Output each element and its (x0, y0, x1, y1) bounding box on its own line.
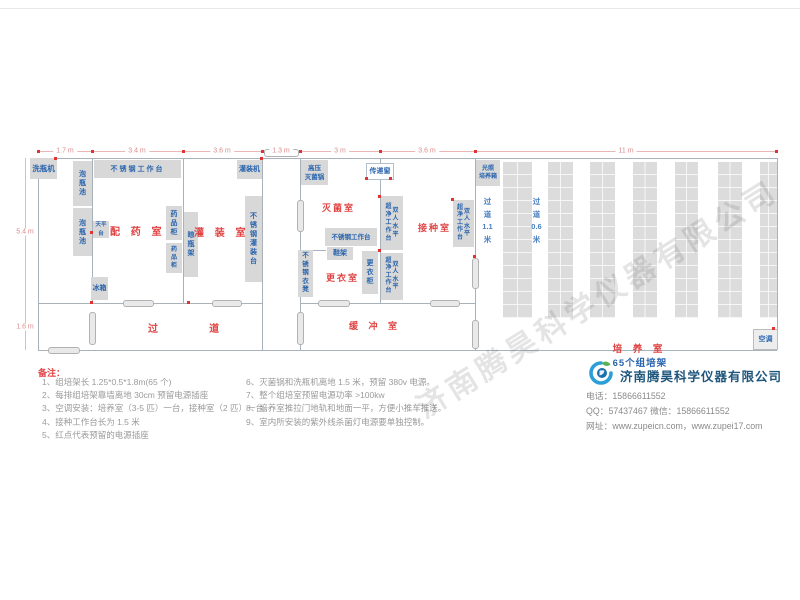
note-item: 5、红点代表预留的电源插座 (42, 429, 272, 442)
culture-rack-count: 65个组培架 (613, 358, 668, 369)
dim-label: 11 m (615, 148, 636, 155)
clean-bench-label-right: 双 人 水 平 (393, 262, 399, 292)
left-dimension-line (25, 158, 26, 350)
dim-label: 5.4 m (13, 229, 37, 236)
power-socket-dot (473, 255, 476, 258)
shoe-rack-box: 鞋架 (327, 247, 353, 260)
clean-bench-label-right: 双 人 水 平 (393, 207, 399, 239)
note-item: 7、整个组培室预留电源功率 >100kw (246, 389, 446, 402)
corridor-width-label-0.6m: 过 道 0.6 米 (529, 196, 544, 246)
power-socket-dot (451, 198, 454, 201)
room-label-changing: 更衣室 (326, 271, 359, 284)
company-qq-wechat: QQ：57437467 微信：15866611552 (586, 404, 730, 417)
power-socket-dot (474, 150, 477, 153)
power-socket-dot (91, 150, 94, 153)
door (89, 312, 96, 345)
locker-box: 更 衣 柜 (362, 251, 378, 294)
steel-worktable-box: 不锈钢工作台 (94, 160, 181, 178)
note-item: 8、培养室推拉门地轨和地面一平，方便小推车推送。 (246, 402, 446, 415)
power-socket-dot (378, 249, 381, 252)
autoclave-box: 高压 灭菌锅 (301, 160, 328, 185)
door (212, 300, 242, 307)
power-socket-dot (775, 150, 778, 153)
dim-label: 1.6 m (13, 324, 37, 331)
wall (38, 158, 777, 159)
note-item: 3、空调安装：培养室（3-5 匹）一台，接种室（2 匹）一台。 (42, 402, 272, 415)
door (123, 300, 154, 307)
door (472, 258, 479, 289)
steel-filling-table-box: 不 锈 钢 灌 装 台 (245, 196, 262, 282)
culture-rack (633, 162, 657, 318)
company-website: 网址：www.zupeicn.com，www.zupei17.com (586, 419, 762, 432)
room-label-inoculation: 接种室 (418, 221, 451, 234)
power-socket-dot (261, 150, 264, 153)
power-socket-dot (54, 157, 57, 160)
door (318, 300, 350, 307)
note-item: 4、接种工作台长为 1.5 米 (42, 416, 272, 429)
power-socket-dot (260, 157, 263, 160)
power-socket-dot (378, 195, 381, 198)
fridge-box: 冰箱 (91, 277, 108, 300)
clean-bench-box: 超 净 工 作 台 双 人 水 平 (453, 200, 474, 247)
steel-bench-box: 不 锈 钢 衣 凳 (298, 250, 313, 297)
note-item: 2、每排组培架靠墙离地 30cm 预留电源插座 (42, 389, 272, 402)
notes-column-1: 1、组培架长 1.25*0.5*1.8m(65 个) 2、每排组培架靠墙离地 3… (42, 376, 272, 442)
corridor-width-label-1.1m: 过 道 1.1 米 (480, 196, 495, 246)
culture-rack (590, 162, 615, 318)
power-socket-dot (90, 301, 93, 304)
door (48, 347, 80, 354)
wall (777, 158, 778, 350)
door (430, 300, 460, 307)
power-socket-dot (90, 231, 93, 234)
wall (38, 158, 39, 350)
culture-rack (548, 162, 573, 318)
note-item: 9、室内所安装的紫外线杀菌灯电源要单独控制。 (246, 416, 446, 429)
power-socket-dot (299, 150, 302, 153)
clean-bench-box: 超 净 工 作 台 双 人 水 平 (381, 253, 403, 300)
bottle-rack-box: 晾 瓶 架 (184, 212, 198, 277)
power-socket-dot (379, 150, 382, 153)
air-conditioner-box: 空调 (753, 329, 778, 350)
soaking-pool-box: 泡 瓶 池 (73, 161, 92, 206)
filling-machine-box: 灌装机 (237, 160, 262, 179)
dim-label: 1.3 m (269, 148, 293, 155)
clean-bench-label-left: 超 净 工 作 台 (385, 203, 391, 243)
page-edge-line (0, 8, 800, 9)
clean-bench-label-left: 超 净 工 作 台 (385, 258, 391, 296)
company-logo-icon (588, 360, 614, 391)
room-label-preparation: 配 药 室 (110, 223, 166, 238)
power-socket-dot (772, 327, 775, 330)
clean-bench-label-left: 超 净 工 作 台 (457, 205, 463, 243)
top-dimension-line (38, 151, 777, 152)
dim-label: 3.4 m (125, 148, 149, 155)
culture-room-name: 培 养 室 (613, 344, 667, 355)
wall (262, 158, 263, 350)
door (297, 312, 304, 345)
note-item: 6、灭菌锅和洗瓶机离地 1.5 米，预留 380v 电源。 (246, 376, 446, 389)
door (472, 320, 479, 349)
dim-label: 1.7 m (53, 148, 77, 155)
balance-table-box: 天平台 (93, 221, 109, 238)
door (297, 200, 304, 232)
dim-label: 3 m (331, 148, 349, 155)
bottle-washer-box: 洗瓶机 (30, 158, 57, 179)
light-incubator-box: 光照 培养箱 (476, 160, 500, 186)
culture-rack (760, 162, 777, 318)
room-label-buffer: 缓 冲 室 (349, 319, 401, 332)
medicine-cabinet-box: 药 品 柜 (166, 206, 182, 240)
power-socket-dot (37, 150, 40, 153)
steel-worktable-box: 不锈钢工作台 (325, 228, 377, 246)
floorplan-page: 1.7 m 3.4 m 3.6 m 1.3 m 3 m 3.6 m 11 m 5… (0, 0, 800, 600)
culture-rack (718, 162, 742, 318)
power-socket-dot (389, 177, 392, 180)
clean-bench-box: 超 净 工 作 台 双 人 水 平 (381, 196, 403, 250)
clean-bench-label-right: 双 人 水 平 (464, 209, 470, 239)
medicine-cabinet-box: 药 品 柜 (166, 243, 182, 273)
dim-label: 3.6 m (210, 148, 234, 155)
power-socket-dot (182, 150, 185, 153)
power-socket-dot (365, 177, 368, 180)
note-item: 1、组培架长 1.25*0.5*1.8m(65 个) (42, 376, 272, 389)
room-label-sterilizing: 灭菌室 (322, 201, 355, 214)
culture-rack (503, 162, 532, 318)
dim-label: 3.6 m (415, 148, 439, 155)
notes-column-2: 6、灭菌锅和洗瓶机离地 1.5 米，预留 380v 电源。 7、整个组培室预留电… (246, 376, 446, 429)
culture-rack (675, 162, 698, 318)
power-socket-dot (187, 301, 190, 304)
room-label-corridor: 过 道 (148, 320, 227, 335)
room-label-filling: 灌 装 室 (194, 224, 250, 239)
